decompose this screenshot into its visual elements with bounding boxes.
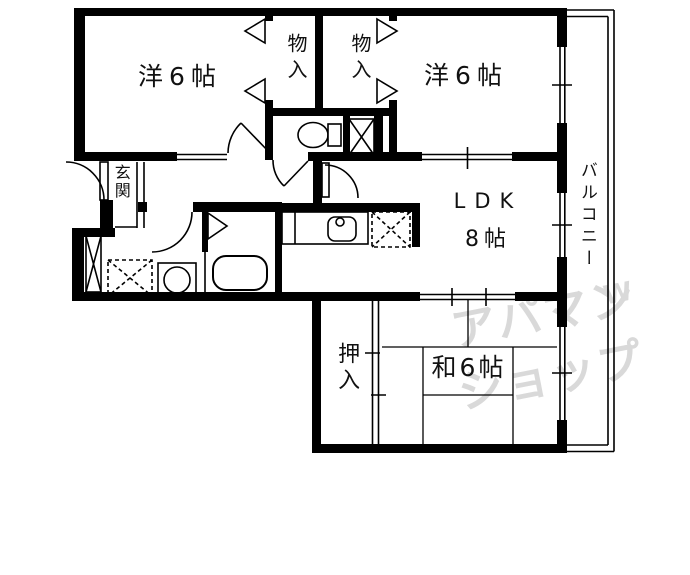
pipe-shaft-icon xyxy=(349,119,374,155)
shoe-shaft-icon xyxy=(86,236,101,292)
room-label-entrance: 玄関 xyxy=(112,164,129,200)
entry-door xyxy=(66,162,108,200)
washer-space-icon xyxy=(108,260,152,296)
washbasin-icon xyxy=(158,263,196,297)
window-ldk xyxy=(552,193,572,257)
floorplan-drawing xyxy=(0,0,690,575)
toilet-door xyxy=(273,160,308,186)
ldk-door xyxy=(322,163,358,198)
window-japanese-room xyxy=(552,327,572,420)
closet-left-bifold-icon xyxy=(245,19,265,103)
bath-folding-door-icon xyxy=(208,213,227,239)
fridge-space-icon xyxy=(372,212,410,247)
closet-right-bifold-icon xyxy=(377,19,397,103)
room-label-oshiire: 押入 xyxy=(335,342,358,394)
washroom-door xyxy=(152,212,192,252)
room-label-bedroom-left: 洋6帖 xyxy=(110,64,250,90)
bedroom-left-door xyxy=(228,123,270,153)
room-label-closet-right: 物入 xyxy=(349,33,370,85)
room-label-bedroom-right: 洋6帖 xyxy=(396,63,536,89)
fusuma-oshiire xyxy=(365,300,386,444)
floorplan: アパマン ショップ W xyxy=(0,0,690,575)
room-label-ldk: LDK xyxy=(448,190,528,212)
bedroom-left-opening xyxy=(177,155,227,160)
kitchen-counter-icon xyxy=(282,212,368,244)
toilet-icon xyxy=(298,123,341,148)
room-label-balcony: バルコニー xyxy=(577,161,595,271)
room-label-japanese-room: 和6帖 xyxy=(424,355,514,381)
window-bedroom-right xyxy=(552,47,572,123)
sliding-door-bedroom-right xyxy=(422,147,512,169)
bathtub-icon xyxy=(213,256,267,290)
room-label-closet-left: 物入 xyxy=(285,33,306,85)
room-label-ldk-size: 8帖 xyxy=(448,228,528,251)
